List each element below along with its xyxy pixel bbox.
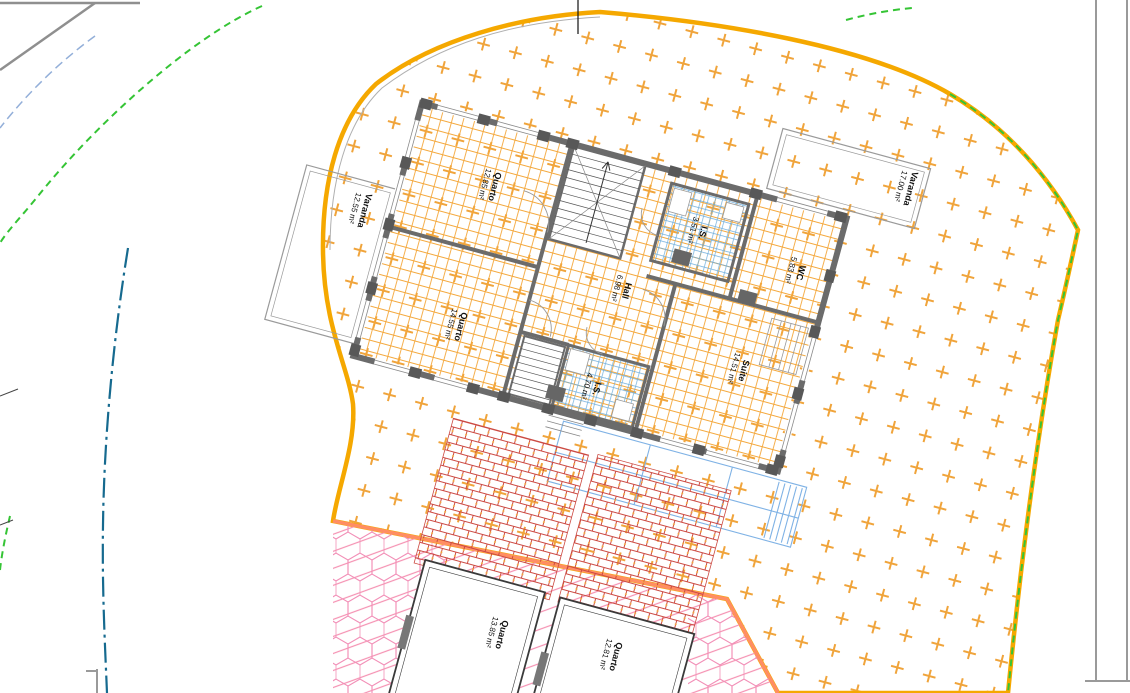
cad-viewport: Varanda 12.55 m² Quarto 12.85 m² Quarto … [0,0,1130,693]
site-plan-svg: Varanda 12.55 m² Quarto 12.85 m² Quarto … [0,0,1130,693]
sheet-frame-bottomleft [86,669,97,693]
neighbor-boundary-ticks [0,389,18,525]
topleft-road-lines [0,3,140,70]
sheet-frame-right [1085,0,1130,681]
boundary-green-topright [846,8,912,20]
contour-dashed-blue [0,36,95,128]
utility-teal-line [103,248,128,693]
